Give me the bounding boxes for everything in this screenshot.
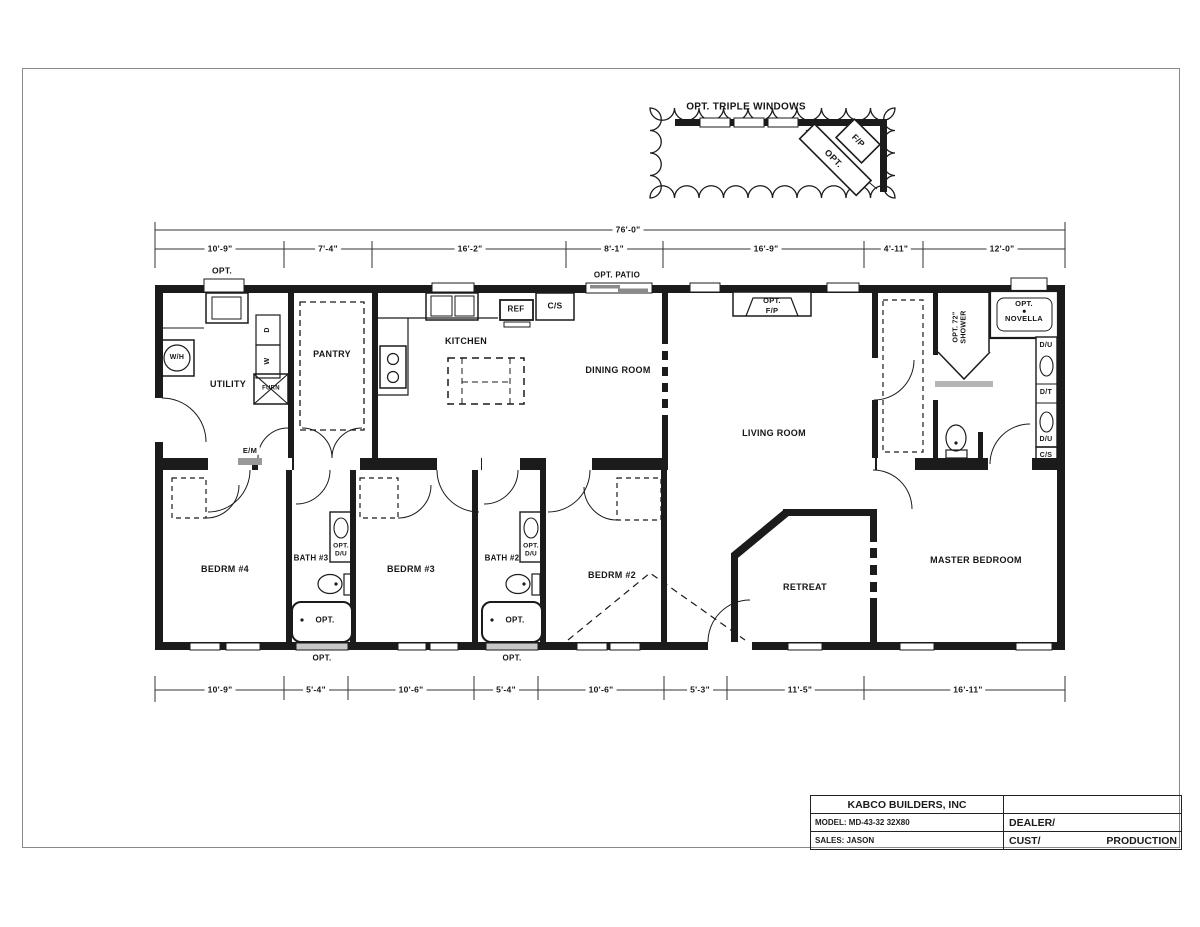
bath3-vanity-du-label: D/U <box>335 550 347 557</box>
bath2-opt-window-label: OPT. <box>503 655 522 664</box>
novella-drain-dot <box>1023 310 1026 313</box>
top-dimension-7: 12'-0" <box>987 244 1018 253</box>
sales-person: SALES: JASON <box>811 831 1003 849</box>
overall-width-dimension: 76'-0" <box>613 225 644 234</box>
top-dimension-1: 10'-9" <box>205 244 236 253</box>
title-block-right-column: DEALER/ CUST/ PRODUCTION <box>1004 796 1181 849</box>
title-block: KABCO BUILDERS, INC MODEL: MD-43-32 32X8… <box>810 795 1182 850</box>
company-name: KABCO BUILDERS, INC <box>811 796 1003 813</box>
electric-meter-label: E/M <box>240 447 260 455</box>
callout-wall-and-windows <box>675 118 887 195</box>
refrigerator-label: REF <box>508 306 525 315</box>
bath2-vanity-du-label: D/U <box>525 550 537 557</box>
china-storage-label-masterbath: C/S <box>1040 452 1053 460</box>
room-label-kitchen: KITCHEN <box>445 337 487 347</box>
china-storage-label-kitchen: C/S <box>547 301 562 310</box>
top-dimension-3: 16'-2" <box>455 244 486 253</box>
room-label-bath-3: BATH #3 <box>294 555 329 564</box>
customer-status-row: CUST/ PRODUCTION <box>1004 831 1181 849</box>
room-label-master-bedroom: MASTER BEDROOM <box>930 556 1022 566</box>
room-label-bedroom-3: BEDRM #3 <box>387 565 435 575</box>
partial-dashed-walls <box>665 335 874 598</box>
room-label-pantry: PANTRY <box>313 350 351 360</box>
bottom-dimension-1: 10'-9" <box>205 685 236 694</box>
vanity-du-label-1: D/U <box>1040 342 1053 350</box>
room-label-retreat: RETREAT <box>783 583 827 593</box>
room-label-bedroom-4: BEDRM #4 <box>201 565 249 575</box>
bath2-opt-tub-label: OPT. <box>506 617 525 626</box>
dryer-label: D <box>264 327 272 332</box>
bath3-opt-window-label: OPT. <box>313 655 332 664</box>
floor-plan-drawing <box>0 0 1200 927</box>
top-dimension-5: 16'-9" <box>751 244 782 253</box>
customer-field: CUST/ <box>1009 835 1041 847</box>
bottom-dimension-8: 16'-11" <box>950 685 985 694</box>
room-label-living-room: LIVING ROOM <box>742 429 806 439</box>
top-dimension-6: 4'-11" <box>881 244 911 253</box>
vanity-du-label-2: D/U <box>1040 436 1053 444</box>
production-status: PRODUCTION <box>1106 835 1177 847</box>
model-number: MODEL: MD-43-32 32X80 <box>811 813 1003 831</box>
callout-title: OPT. TRIPLE WINDOWS <box>686 102 806 113</box>
top-dimension-4: 8'-1" <box>601 244 627 253</box>
opt-novella-label-line2: NOVELLA <box>1005 315 1043 323</box>
bath2-vanity-opt-label: OPT. <box>523 542 539 549</box>
bottom-dimension-5: 10'-6" <box>586 685 617 694</box>
bottom-dimension-6: 5'-3" <box>687 685 713 694</box>
marriage-wall <box>155 458 1065 470</box>
furnace-label: FURN <box>262 386 280 393</box>
top-dimension-2: 7'-4" <box>315 244 341 253</box>
bottom-dimension-3: 10'-6" <box>396 685 427 694</box>
bath3-opt-tub-label: OPT. <box>316 617 335 626</box>
title-block-blank-cell <box>1004 796 1181 813</box>
room-label-bedroom-2: BEDRM #2 <box>588 571 636 581</box>
opt-fireplace-label-line2: F/P <box>766 307 779 315</box>
title-block-left-column: KABCO BUILDERS, INC MODEL: MD-43-32 32X8… <box>811 796 1004 849</box>
opt-window-label-utility: OPT. <box>212 266 232 275</box>
vanity-dt-label: D/T <box>1040 389 1052 397</box>
bottom-dimension-4: 5'-4" <box>493 685 519 694</box>
room-label-dining-room: DINING ROOM <box>585 366 650 376</box>
floor-plan-sheet: OPT. TRIPLE WINDOWS F/P OPT. 76'-0" 10'-… <box>0 0 1200 927</box>
bottom-dimension-2: 5'-4" <box>303 685 329 694</box>
washer-label: W <box>264 358 272 365</box>
opt-patio-label: OPT. PATIO <box>591 272 643 281</box>
bath3-vanity-opt-label: OPT. <box>333 542 349 549</box>
room-label-utility: UTILITY <box>210 380 246 390</box>
room-label-bath-2: BATH #2 <box>485 555 520 564</box>
opt-shower-label: OPT. 72"SHOWER <box>952 310 967 343</box>
bottom-dimension-7: 11'-5" <box>785 685 815 694</box>
opt-novella-label-line1: OPT. <box>1015 300 1033 308</box>
dealer-field: DEALER/ <box>1004 813 1181 831</box>
opt-fireplace-label-line1: OPT. <box>763 297 781 305</box>
water-heater-label: W/H <box>170 354 185 362</box>
